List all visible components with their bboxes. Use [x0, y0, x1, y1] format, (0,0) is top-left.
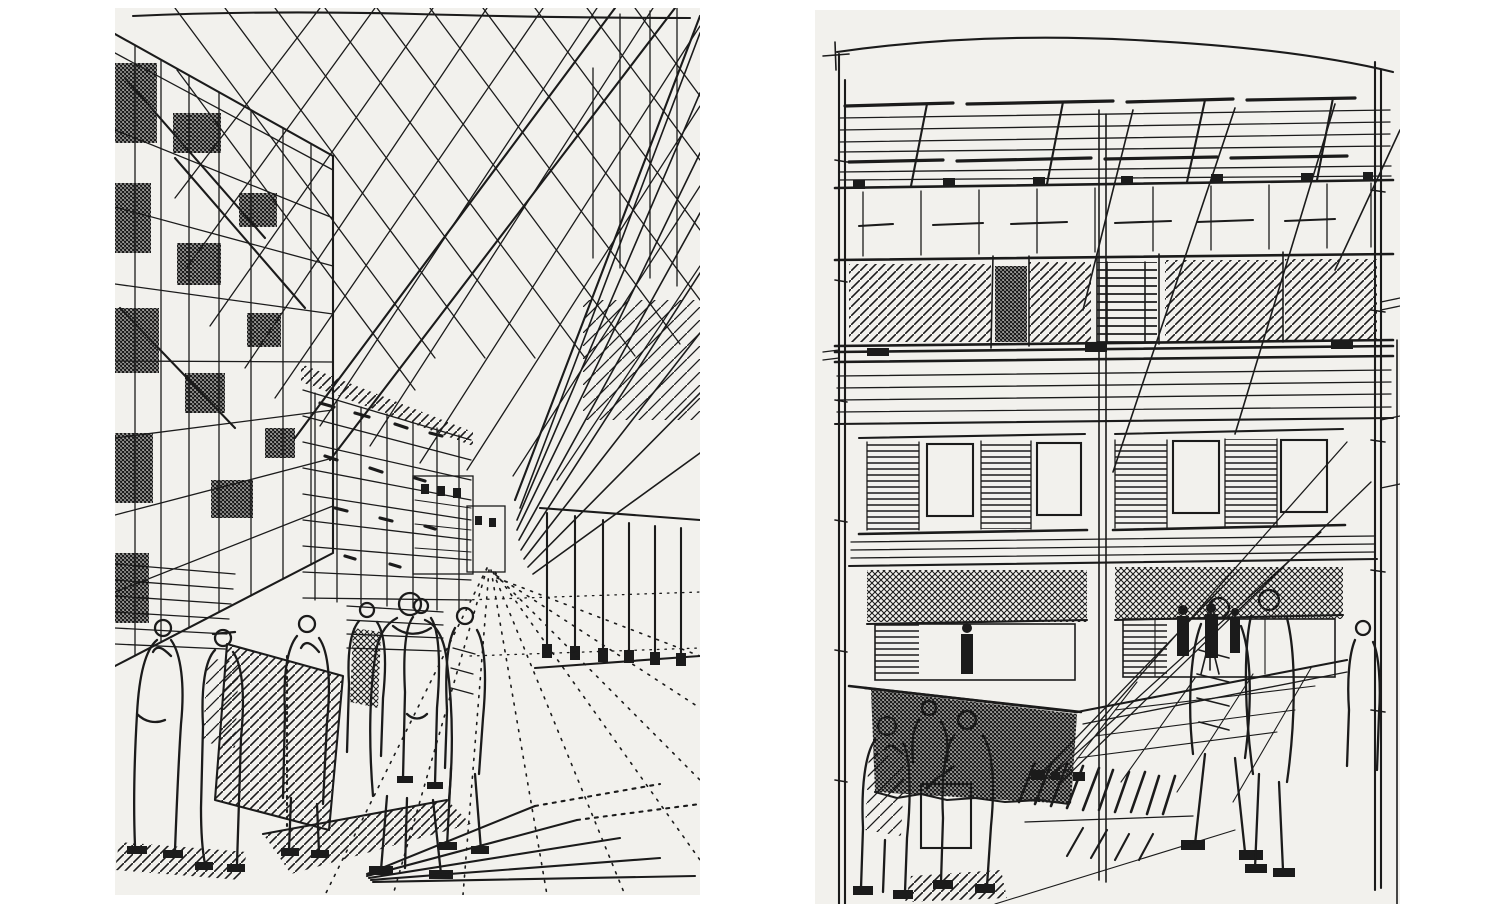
left-sketch-panel — [115, 8, 700, 895]
right-sketch — [815, 10, 1400, 904]
dark-hatch-patch — [115, 63, 157, 143]
left-sketch — [115, 8, 700, 895]
hatched-panel-band — [835, 252, 1393, 348]
louvre-box — [1097, 262, 1157, 342]
right-sketch-panel — [815, 10, 1400, 904]
dark-window-box — [995, 266, 1027, 342]
